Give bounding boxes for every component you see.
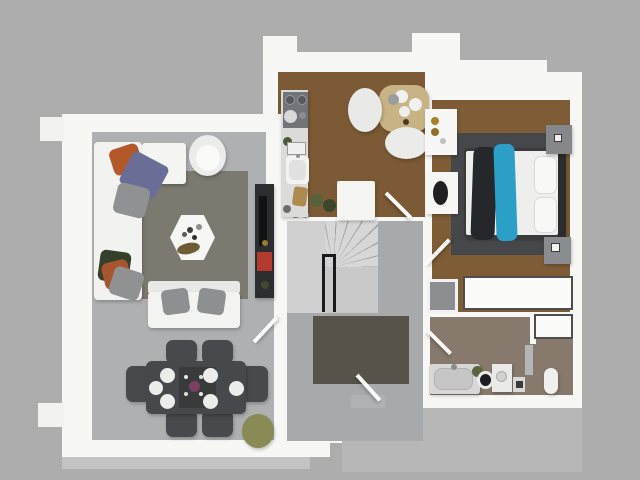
stair-rail-right [333, 254, 336, 312]
kitchen-chair-bottom [385, 127, 428, 159]
bedroom-closet [463, 276, 573, 310]
apron-left [62, 457, 310, 469]
plate-4 [203, 394, 218, 409]
bed-pillow-top [534, 156, 557, 194]
floor-plan-render [0, 0, 640, 480]
island-plant-1 [310, 194, 323, 207]
coffee-table-decor-4 [192, 235, 197, 240]
bathtub-basin [434, 368, 473, 390]
coffee-table-decor-3 [182, 232, 187, 237]
dining-plant [242, 414, 274, 448]
candle-4 [199, 392, 203, 396]
nightstand-right-button [551, 243, 560, 252]
coffee-table-decor-2 [196, 224, 202, 230]
loveseat-pillow-left [160, 287, 190, 316]
kitchen-table-teapot [388, 94, 399, 105]
plate-2 [203, 368, 218, 383]
bath-faucet [451, 364, 457, 370]
bed-headboard [558, 148, 566, 238]
wall-living-hall-lower [274, 344, 287, 440]
island-plant-2 [323, 199, 336, 212]
centerpiece-flowers [189, 381, 200, 392]
stair-rail-left [322, 254, 325, 312]
bedroom-dresser [425, 109, 457, 155]
kitchen-table-decor [403, 119, 409, 125]
kitchen-table-plate-3 [399, 106, 410, 117]
console-red-books [257, 252, 272, 271]
stove-knob [299, 112, 306, 119]
wall-living-hall-upper [274, 222, 287, 312]
dresser-gold-decor-1 [431, 117, 439, 125]
plate-5 [149, 381, 163, 395]
loveseat-pillow-right [196, 287, 226, 316]
bed-blanket-teal [493, 144, 517, 242]
bath-appliance-face [516, 381, 523, 388]
hallway-rug [313, 316, 409, 384]
shower-closet [427, 279, 458, 313]
bed-pillow-bottom [534, 197, 557, 233]
staircase-treads [287, 221, 325, 313]
dresser-decor [440, 138, 446, 144]
plate-1 [160, 368, 175, 383]
small-closet [534, 314, 573, 339]
console-plant [261, 281, 269, 289]
console-gold-decor [262, 240, 268, 246]
coffee-table-decor-1 [187, 227, 193, 233]
dish-rack [287, 142, 306, 155]
washer-door [496, 371, 507, 382]
sink-basin [289, 160, 306, 180]
sink-faucet [296, 154, 300, 158]
dining-chair-bottom-left [166, 410, 197, 437]
towel-radiator [525, 345, 533, 375]
armchair-cushion [196, 145, 220, 171]
cutting-board [292, 186, 309, 207]
kettle [284, 110, 297, 123]
radiator [544, 368, 558, 394]
plate-3 [160, 394, 175, 409]
plate-6 [229, 381, 244, 396]
dining-chair-bottom-right [202, 410, 233, 437]
wall-pilaster-top [40, 117, 64, 141]
wardrobe-button [554, 134, 562, 142]
counter-bottles [283, 205, 291, 213]
tv-screen [259, 196, 267, 246]
burner-2 [297, 95, 307, 105]
kitchen-table-plate-2 [409, 98, 422, 111]
kitchen-island [337, 181, 375, 220]
candle-2 [199, 375, 203, 379]
candle-3 [184, 392, 188, 396]
wall-pilaster-bottom [38, 403, 64, 427]
dresser-gold-decor-2 [431, 128, 439, 136]
nightstand-decor [433, 181, 448, 205]
candle-1 [184, 375, 188, 379]
burner-1 [285, 95, 295, 105]
kitchen-chair-top [348, 88, 382, 132]
